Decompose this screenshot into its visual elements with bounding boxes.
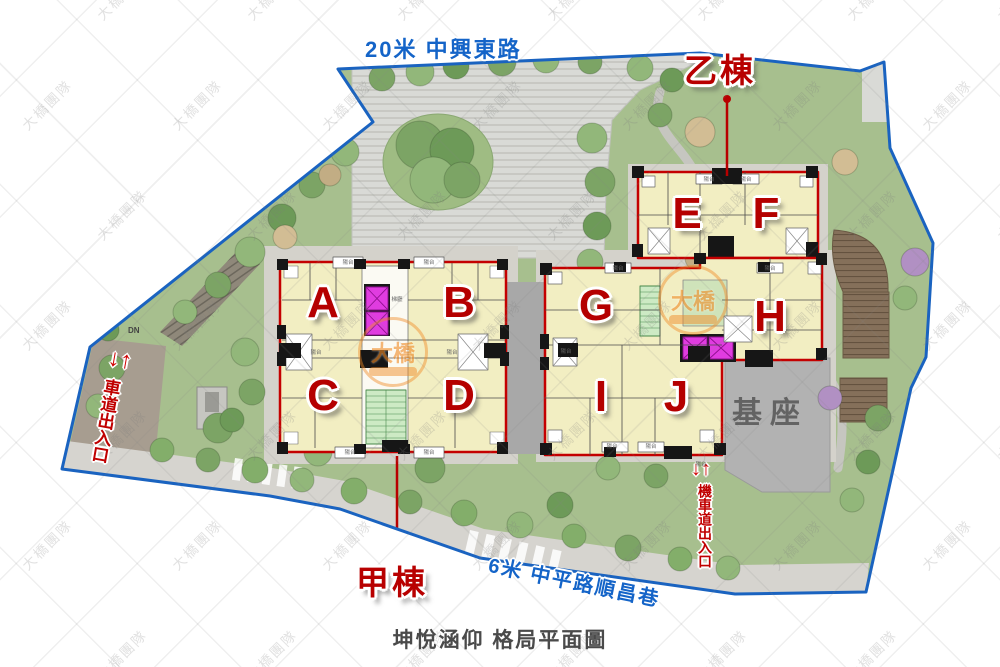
tree <box>716 556 740 580</box>
tree <box>205 272 231 298</box>
tree <box>840 488 864 512</box>
tree <box>341 478 367 504</box>
tree <box>578 50 602 74</box>
tree <box>901 248 929 276</box>
tree <box>239 379 265 405</box>
tree <box>443 53 469 79</box>
tree <box>444 162 480 198</box>
tree <box>596 456 620 480</box>
tree <box>235 237 265 267</box>
team-logo-text: 大橋 <box>671 284 715 316</box>
tree <box>893 286 917 310</box>
tree <box>865 405 891 431</box>
tree <box>150 438 174 462</box>
tree <box>196 448 220 472</box>
tree <box>562 524 586 548</box>
building-yi <box>632 166 818 260</box>
tree <box>319 164 341 186</box>
site-plan: 大橋團隊大橋團隊大橋團隊大橋團隊大橋團隊大橋團隊大橋團隊大橋團隊大橋團隊大橋團隊… <box>0 0 1000 667</box>
tree <box>648 103 672 127</box>
tree <box>627 55 653 81</box>
tree <box>451 500 477 526</box>
tree <box>398 490 422 514</box>
tree <box>507 512 533 538</box>
tree <box>856 450 880 474</box>
podium <box>725 358 830 492</box>
wood-stairs-east <box>843 292 889 358</box>
tree <box>585 167 615 197</box>
tree <box>644 464 668 488</box>
tree <box>818 386 842 410</box>
tree <box>668 547 692 571</box>
tree <box>231 338 259 366</box>
tree <box>86 394 110 418</box>
tree <box>577 123 607 153</box>
stairs <box>640 286 660 336</box>
tree <box>242 457 268 483</box>
tree <box>685 117 715 147</box>
team-logo-watermark: 大橋 <box>658 265 728 335</box>
tree <box>547 492 573 518</box>
tree <box>406 58 434 86</box>
tree <box>583 212 611 240</box>
team-logo-text: 大橋 <box>371 336 415 368</box>
tree <box>660 68 684 92</box>
tree <box>99 355 125 381</box>
tree <box>220 408 244 432</box>
tree <box>832 149 858 175</box>
tree <box>290 468 314 492</box>
site-interior <box>0 0 1000 667</box>
team-logo-watermark: 大橋 <box>358 317 428 387</box>
site-plan-drawing <box>0 0 1000 667</box>
tree <box>273 225 297 249</box>
tree <box>615 535 641 561</box>
tree <box>173 300 197 324</box>
